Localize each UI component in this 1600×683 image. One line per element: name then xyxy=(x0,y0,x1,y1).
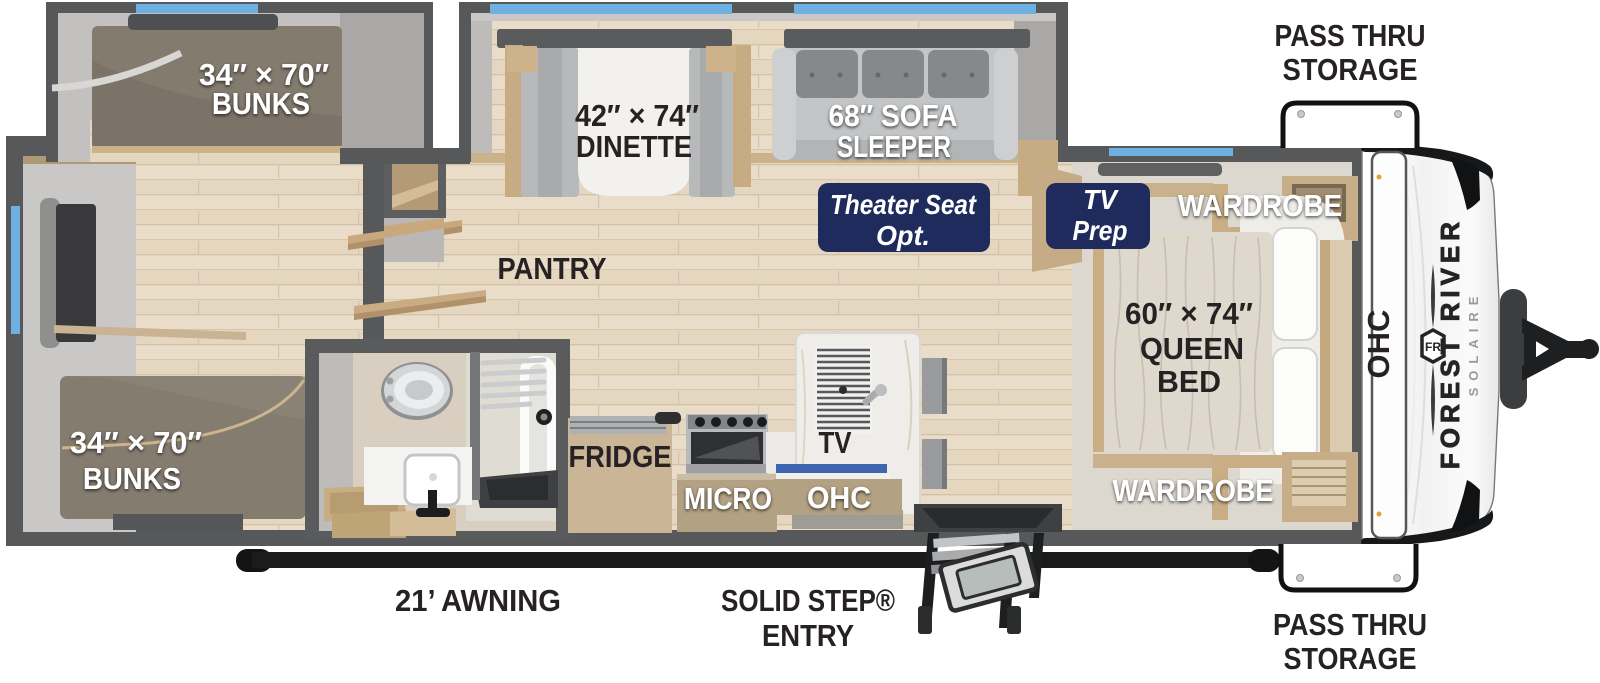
svg-text:SOLID STEP®: SOLID STEP® xyxy=(721,583,895,618)
svg-text:BUNKS: BUNKS xyxy=(83,461,181,496)
svg-text:21’ AWNING: 21’ AWNING xyxy=(395,583,561,618)
svg-text:PASS THRU: PASS THRU xyxy=(1273,607,1427,642)
svg-text:SOLAIRE: SOLAIRE xyxy=(1466,290,1481,397)
svg-text:ENTRY: ENTRY xyxy=(762,618,854,653)
svg-text:BED: BED xyxy=(1157,364,1221,399)
svg-text:FRIDGE: FRIDGE xyxy=(569,439,672,474)
svg-text:TV: TV xyxy=(1083,184,1119,215)
svg-text:Prep: Prep xyxy=(1073,215,1128,246)
svg-text:STORAGE: STORAGE xyxy=(1284,641,1417,676)
svg-text:QUEEN: QUEEN xyxy=(1140,331,1244,366)
svg-text:PASS THRU: PASS THRU xyxy=(1275,18,1426,53)
svg-text:34″ × 70″: 34″ × 70″ xyxy=(70,425,202,460)
svg-text:SLEEPER: SLEEPER xyxy=(837,129,951,164)
svg-text:PANTRY: PANTRY xyxy=(498,251,607,286)
svg-text:TV: TV xyxy=(819,425,852,460)
svg-text:Theater Seat: Theater Seat xyxy=(830,189,977,220)
svg-text:FOREST RIVER: FOREST RIVER xyxy=(1435,217,1465,469)
svg-text:60″ × 74″: 60″ × 74″ xyxy=(1125,296,1253,331)
svg-text:WARDROBE: WARDROBE xyxy=(1178,188,1342,223)
svg-text:68″ SOFA: 68″ SOFA xyxy=(829,98,958,133)
svg-text:DINETTE: DINETTE xyxy=(576,129,692,164)
svg-text:WARDROBE: WARDROBE xyxy=(1113,473,1274,508)
svg-text:Opt.: Opt. xyxy=(876,220,930,251)
svg-text:STORAGE: STORAGE xyxy=(1283,52,1418,87)
svg-text:BUNKS: BUNKS xyxy=(212,86,310,121)
svg-text:42″ × 74″: 42″ × 74″ xyxy=(575,98,699,133)
svg-text:MICRO: MICRO xyxy=(684,481,772,516)
svg-text:OHC: OHC xyxy=(807,480,871,515)
svg-text:OHC: OHC xyxy=(1361,310,1396,379)
